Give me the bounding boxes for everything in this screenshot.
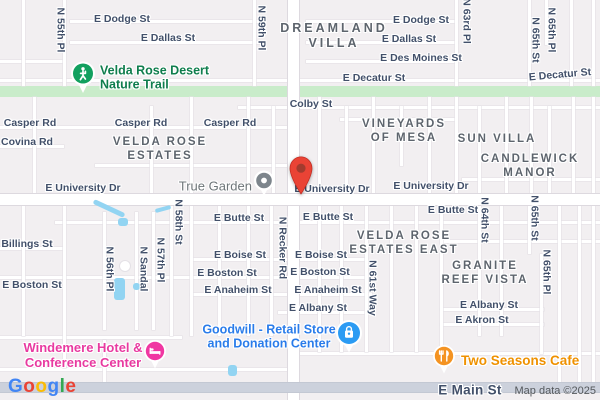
- pin-inner-dot: [296, 164, 305, 173]
- street-label: E Butte St: [303, 212, 353, 223]
- cul-de-sac: [120, 261, 130, 271]
- map-attribution: Map data ©2025: [515, 385, 597, 397]
- street-label: E Butte St: [214, 213, 264, 224]
- street-label: N 65th St: [529, 195, 540, 241]
- street-label: N 56th Pl: [104, 247, 115, 292]
- street-label: Casper Rd: [204, 118, 257, 129]
- street-label: Colby St: [290, 99, 333, 110]
- area-label: VELDA ROSE ESTATES EAST: [349, 230, 458, 258]
- google-logo[interactable]: Google: [8, 376, 76, 398]
- area-label: GRANITE REEF VISTA: [442, 260, 529, 288]
- street-label: E Boston St: [290, 267, 350, 278]
- street-label: E Dallas St: [382, 34, 436, 45]
- windemere-label[interactable]: Windemere Hotel & Conference Center: [23, 341, 142, 371]
- area-label: VELDA ROSE ESTATES: [113, 136, 207, 164]
- street-label: E University Dr: [393, 181, 468, 192]
- road-segment: [592, 97, 595, 194]
- windemere-marker[interactable]: [143, 340, 167, 375]
- street-label: Casper Rd: [115, 118, 168, 129]
- water-feature: [155, 205, 171, 213]
- true-garden-marker[interactable]: [253, 170, 275, 202]
- water-feature: [228, 365, 237, 376]
- water-feature: [118, 218, 128, 226]
- google-letter: o: [35, 376, 47, 397]
- street-label: N 65th Pl: [546, 8, 557, 53]
- road-segment: [592, 0, 595, 86]
- road-segment: [270, 204, 273, 336]
- two-seasons-label[interactable]: Two Seasons Cafe: [461, 353, 579, 369]
- map-canvas[interactable]: E Dodge StE Dallas StE Dodge StE Dallas …: [0, 0, 600, 400]
- road-segment: [190, 204, 193, 336]
- road-segment: [0, 60, 64, 63]
- road-segment: [22, 204, 25, 336]
- street-label: E Butte St: [428, 205, 478, 216]
- destination-pin[interactable]: [288, 155, 315, 200]
- goodwill-marker[interactable]: [335, 320, 363, 359]
- street-label: N 63rd Pl: [461, 0, 472, 44]
- street-label: E Anaheim St: [294, 285, 361, 296]
- two-seasons-marker[interactable]: [432, 345, 456, 380]
- street-label: E Decatur St: [343, 73, 405, 84]
- street-label: E Boise St: [214, 250, 266, 261]
- road-segment: [478, 106, 481, 194]
- street-label: N 61st Way: [367, 260, 378, 316]
- street-label: N 59th Pl: [256, 6, 267, 51]
- road-segment: [440, 240, 600, 243]
- road-segment: [95, 164, 294, 167]
- road-segment: [455, 0, 458, 86]
- road-segment: [592, 204, 595, 384]
- street-label: E Albany St: [460, 300, 518, 311]
- street-label: N Recker Rd: [277, 217, 288, 279]
- street-label: N 65th Pl: [541, 250, 552, 295]
- street-label: E Dodge St: [393, 15, 449, 26]
- area-label: DREAMLAND VILLA: [280, 21, 388, 51]
- area-label: SUN VILLA: [458, 133, 537, 147]
- trail-marker[interactable]: [70, 61, 96, 99]
- street-label: N Sandal: [138, 247, 149, 292]
- google-letter: o: [23, 376, 35, 397]
- street-label: E Des Moines St: [380, 53, 462, 64]
- street-label: Billings St: [1, 239, 52, 250]
- area-label: CANDLEWICK MANOR: [481, 153, 580, 181]
- road-segment: [0, 383, 600, 392]
- road-segment: [318, 97, 321, 194]
- street-label: E Main St: [438, 383, 501, 397]
- street-label: E Dodge St: [94, 14, 150, 25]
- road-segment: [390, 204, 393, 352]
- street-label: N 55th Pl: [55, 8, 66, 53]
- goodwill-label[interactable]: Goodwill - Retail Store and Donation Cen…: [202, 323, 335, 352]
- street-label: E Anaheim St: [204, 285, 271, 296]
- road-segment: [415, 204, 418, 352]
- google-letter: g: [48, 376, 60, 397]
- street-label: E Akron St: [455, 315, 508, 326]
- street-label: N 58th St: [173, 199, 184, 245]
- road-segment: [22, 0, 25, 86]
- street-label: N 64th St: [479, 197, 490, 243]
- street-label: E Boston St: [2, 280, 62, 291]
- street-label: E University Dr: [45, 183, 120, 194]
- google-letter: e: [65, 376, 76, 397]
- street-label: E Dallas St: [141, 33, 195, 44]
- area-label: VINEYARDS OF MESA: [362, 118, 446, 146]
- street-label: Covina Rd: [1, 137, 53, 148]
- street-label: E Albany St: [289, 303, 347, 314]
- street-label: E Boston St: [197, 268, 257, 279]
- street-label: E Boise St: [295, 250, 347, 261]
- google-letter: G: [8, 376, 23, 397]
- water-feature: [114, 278, 125, 300]
- trail-label[interactable]: Velda Rose Desert Nature Trail: [100, 64, 209, 93]
- street-label: N 65th St: [530, 17, 541, 63]
- true-garden-label[interactable]: True Garden: [179, 180, 252, 195]
- road-segment: [548, 106, 551, 194]
- street-label: N 57th Pl: [155, 238, 166, 283]
- street-label: Casper Rd: [4, 118, 57, 129]
- road-segment: [345, 106, 348, 194]
